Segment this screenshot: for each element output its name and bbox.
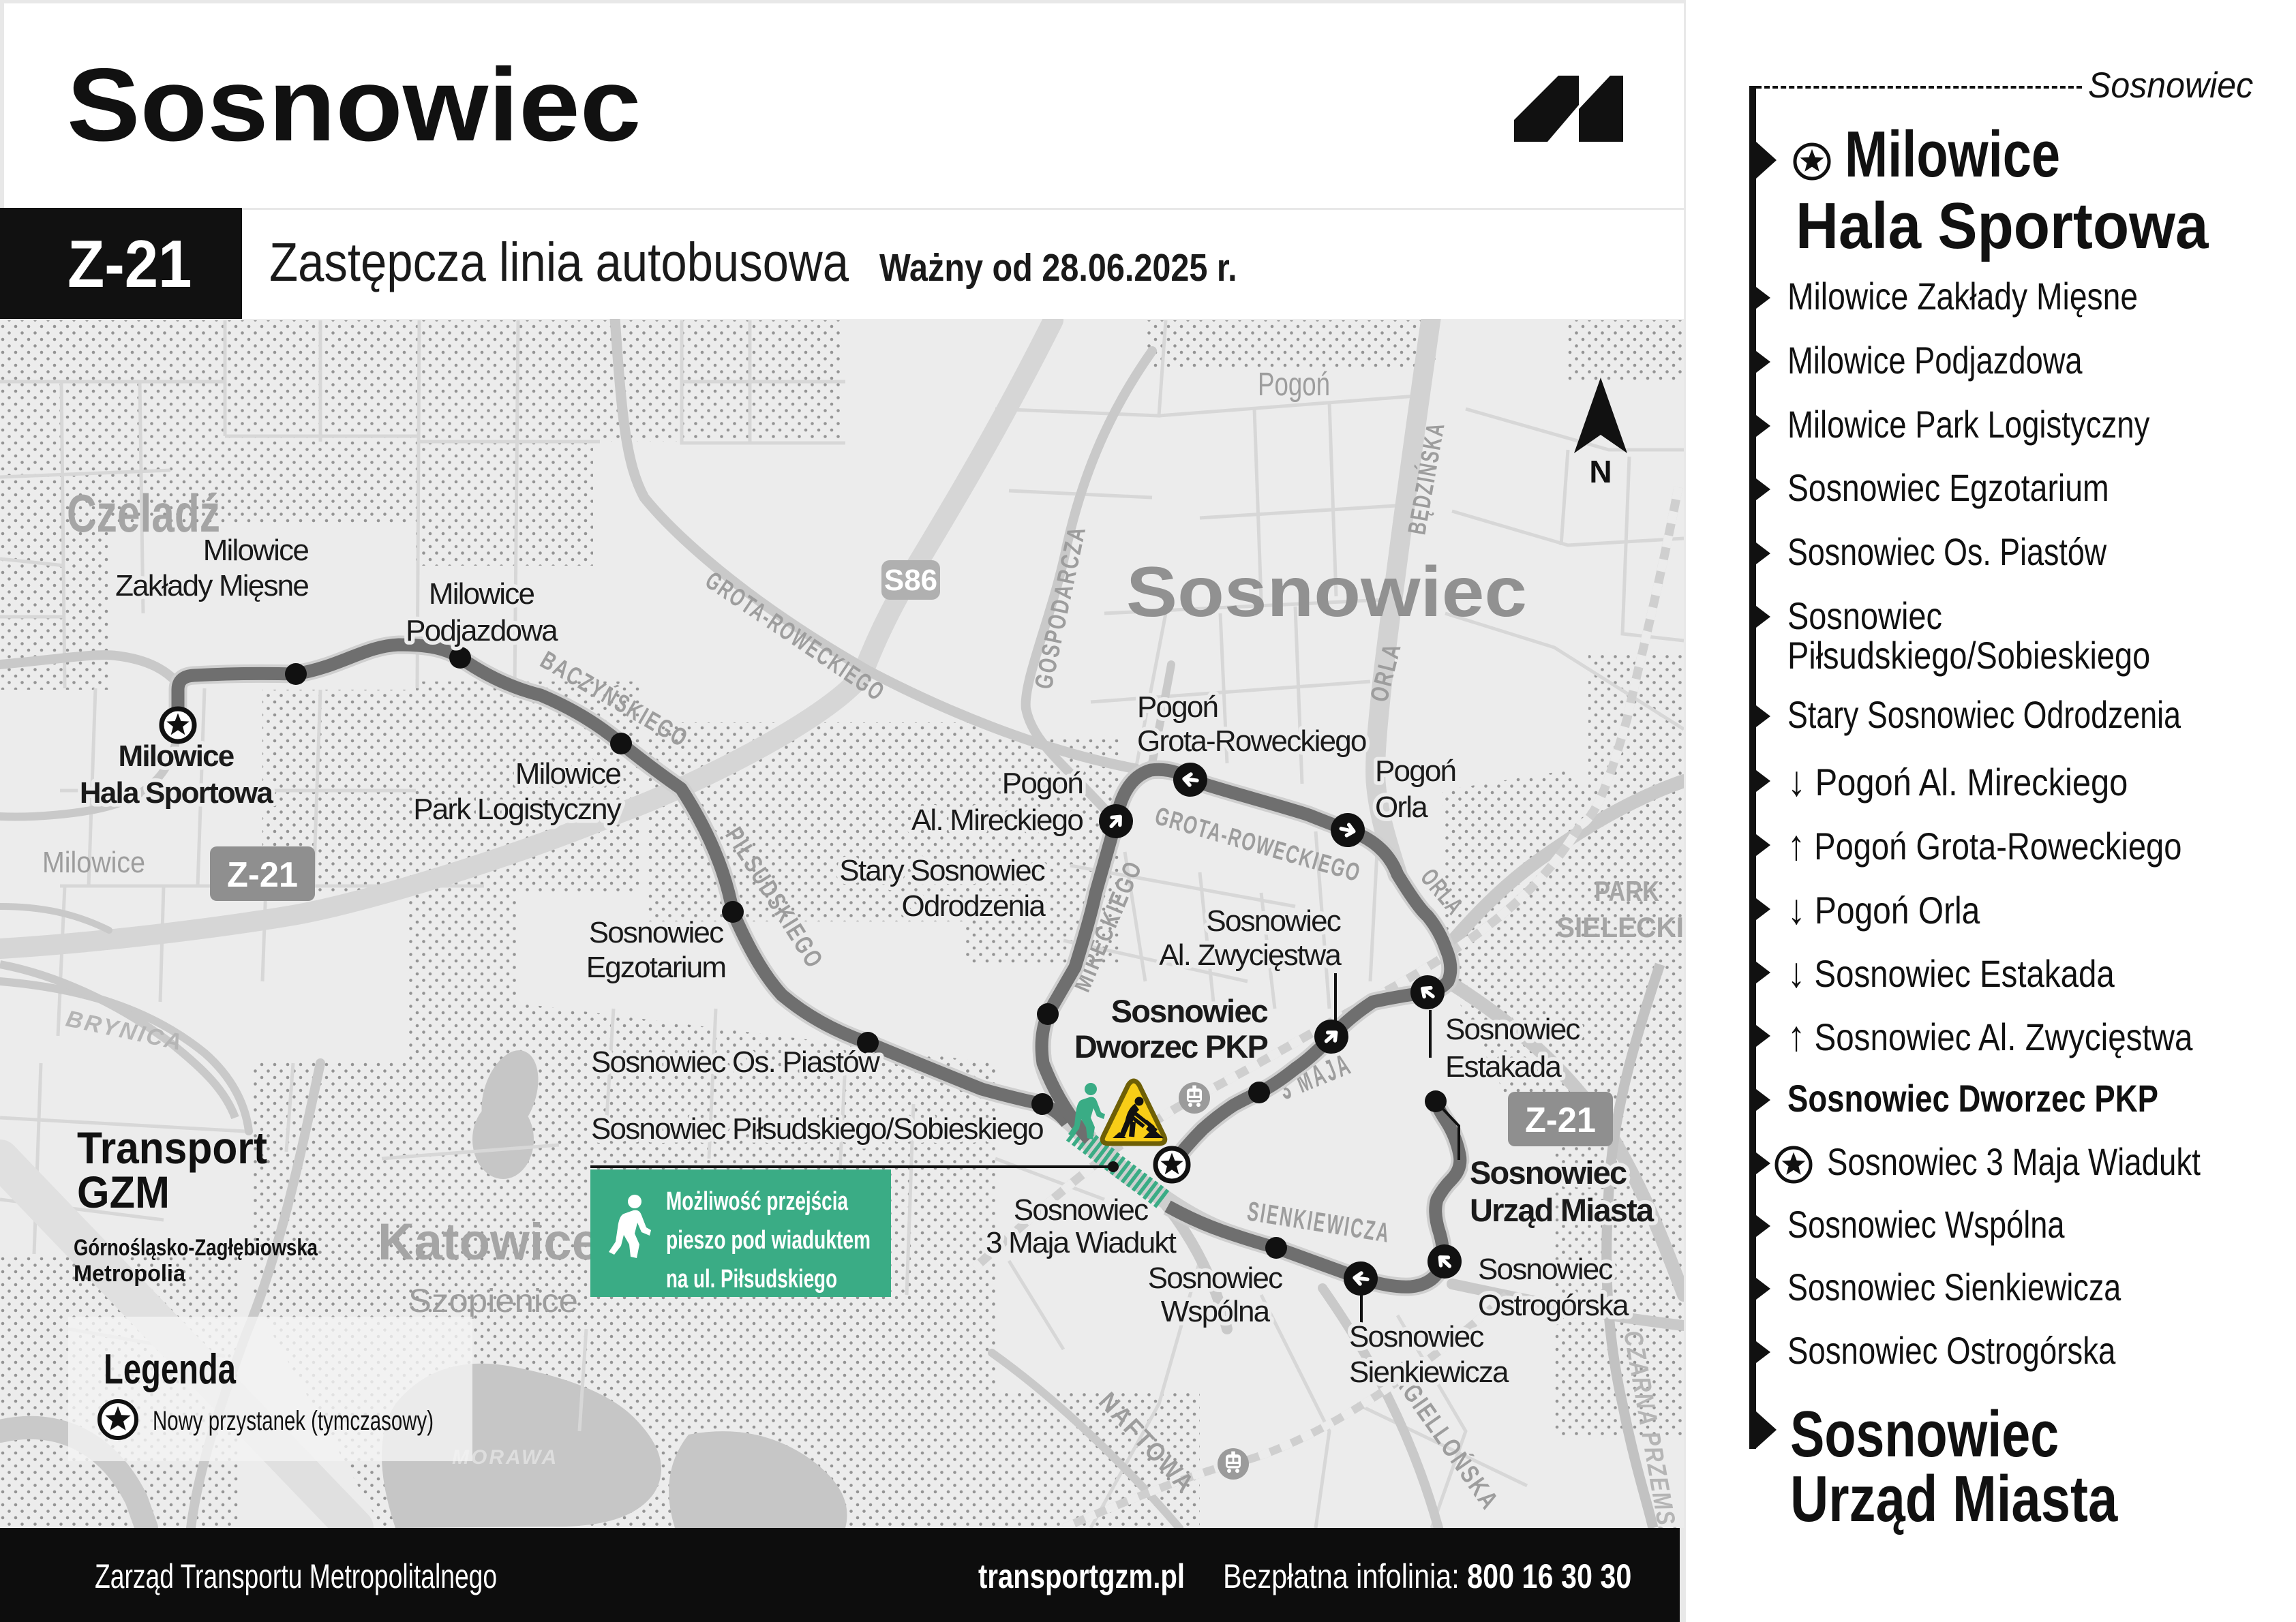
svg-text:Podjazdowa: Podjazdowa: [406, 614, 558, 647]
svg-text:Sosnowiec: Sosnowiec: [1206, 904, 1340, 938]
svg-text:Orla: Orla: [1375, 791, 1428, 824]
svg-text:Z-21: Z-21: [1525, 1101, 1596, 1140]
svg-text:S86: S86: [884, 564, 937, 597]
svg-text:SIELECKI: SIELECKI: [1556, 911, 1684, 943]
svg-text:Al. Mireckiego: Al. Mireckiego: [911, 804, 1083, 837]
svg-text:Sosnowiec: Sosnowiec: [1014, 1193, 1148, 1227]
svg-text:Milowice: Milowice: [429, 577, 534, 611]
svg-text:Milowice: Milowice: [203, 534, 309, 567]
svg-text:Nowy przystanek (tymczasowy): Nowy przystanek (tymczasowy): [153, 1406, 434, 1436]
svg-text:Egzotarium: Egzotarium: [586, 951, 726, 984]
svg-text:Szopienice: Szopienice: [408, 1283, 578, 1319]
svg-text:Sosnowiec: Sosnowiec: [1126, 553, 1527, 632]
svg-text:Ostrogórska: Ostrogórska: [1478, 1289, 1629, 1322]
svg-text:Sosnowiec: Sosnowiec: [589, 916, 723, 949]
svg-text:Odrodzenia: Odrodzenia: [902, 889, 1046, 923]
svg-text:N: N: [1589, 454, 1612, 489]
svg-text:Sosnowiec: Sosnowiec: [1111, 993, 1268, 1029]
svg-text:Katowice: Katowice: [378, 1213, 600, 1271]
svg-text:na ul. Piłsudskiego: na ul. Piłsudskiego: [666, 1265, 837, 1294]
svg-text:Sosnowiec Piłsudskiego/Sobiesk: Sosnowiec Piłsudskiego/Sobieskiego: [591, 1112, 1043, 1146]
svg-text:Sosnowiec: Sosnowiec: [1148, 1261, 1282, 1295]
svg-text:Dworzec PKP: Dworzec PKP: [1074, 1028, 1268, 1065]
svg-text:Sienkiewicza: Sienkiewicza: [1349, 1356, 1509, 1389]
svg-text:PARK: PARK: [1595, 875, 1659, 907]
svg-text:3 Maja Wiadukt: 3 Maja Wiadukt: [986, 1226, 1177, 1259]
svg-text:Górnośląsko-Zagłębiowska: Górnośląsko-Zagłębiowska: [74, 1235, 318, 1261]
svg-text:Pogoń: Pogoń: [1258, 367, 1330, 403]
svg-text:Legenda: Legenda: [104, 1346, 236, 1393]
svg-text:Sosnowiec: Sosnowiec: [1349, 1320, 1483, 1353]
svg-text:Park Logistyczny: Park Logistyczny: [413, 793, 622, 826]
svg-text:Transport: Transport: [77, 1122, 267, 1173]
svg-text:Z-21: Z-21: [227, 855, 298, 895]
svg-text:Milowice: Milowice: [119, 739, 234, 773]
svg-text:Hala Sportowa: Hala Sportowa: [80, 776, 274, 810]
svg-text:Milowice: Milowice: [42, 846, 145, 879]
svg-text:Pogoń: Pogoń: [1002, 767, 1083, 800]
svg-text:GZM: GZM: [77, 1167, 170, 1217]
svg-text:Stary Sosnowiec: Stary Sosnowiec: [839, 854, 1045, 887]
svg-text:Urząd Miasta: Urząd Miasta: [1470, 1192, 1655, 1228]
svg-text:Możliwość przejścia: Możliwość przejścia: [666, 1187, 849, 1216]
svg-text:Sosnowiec: Sosnowiec: [1470, 1154, 1627, 1191]
svg-text:Estakada: Estakada: [1445, 1050, 1562, 1084]
svg-text:Pogoń: Pogoń: [1375, 754, 1455, 788]
svg-text:Grota-Roweckiego: Grota-Roweckiego: [1137, 724, 1366, 758]
svg-text:Al. Zwycięstwa: Al. Zwycięstwa: [1159, 938, 1342, 972]
svg-text:Sosnowiec: Sosnowiec: [1478, 1253, 1612, 1286]
svg-text:Milowice: Milowice: [515, 757, 621, 791]
svg-text:Pogoń: Pogoń: [1137, 690, 1218, 724]
svg-text:Metropolia: Metropolia: [74, 1261, 186, 1287]
svg-text:Wspólna: Wspólna: [1161, 1295, 1271, 1328]
svg-text:Czeladź: Czeladź: [67, 483, 220, 543]
svg-text:Sosnowiec: Sosnowiec: [1445, 1013, 1580, 1046]
svg-text:Zakłady Mięsne: Zakłady Mięsne: [115, 569, 308, 602]
svg-text:pieszo pod wiaduktem: pieszo pod wiaduktem: [666, 1226, 871, 1255]
svg-text:Sosnowiec Os. Piastów: Sosnowiec Os. Piastów: [591, 1045, 880, 1079]
